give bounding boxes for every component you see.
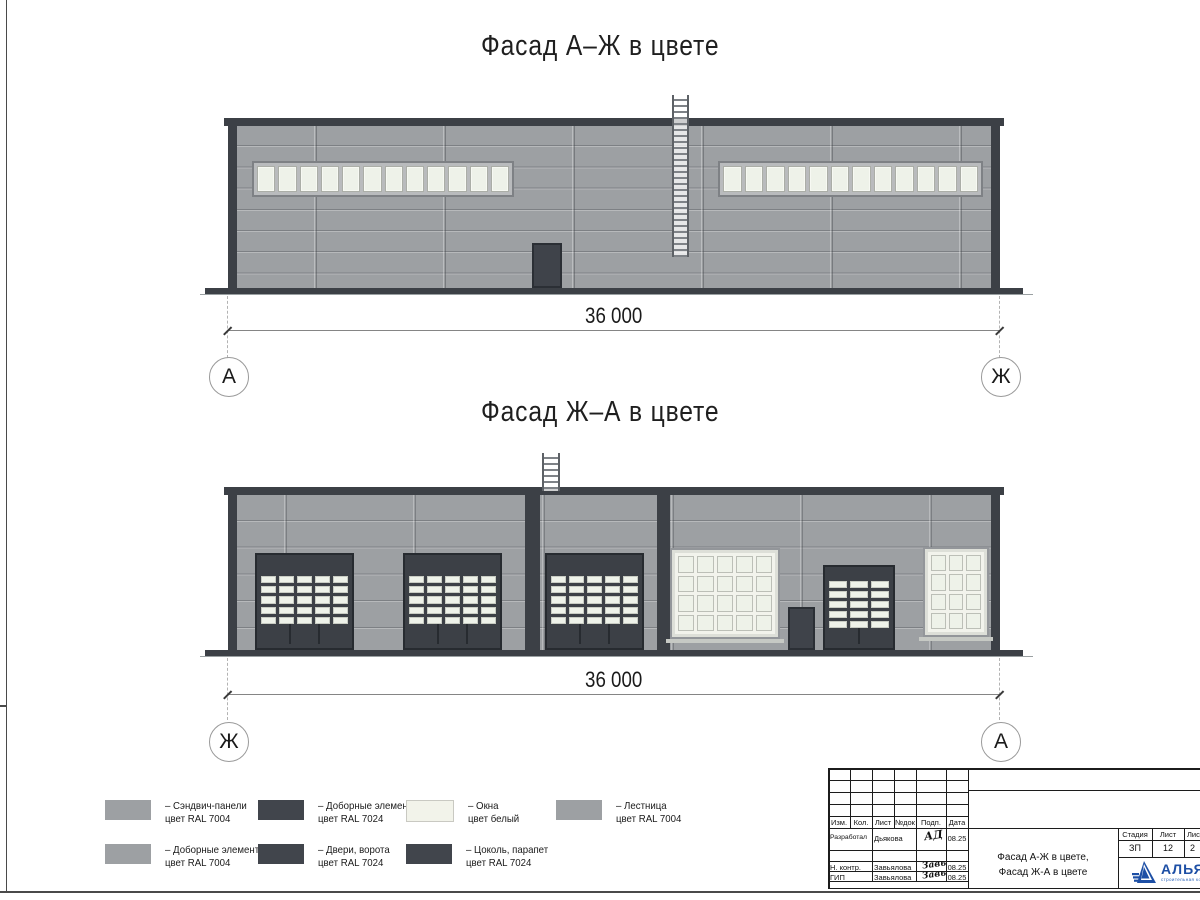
facade-2-corner-column-left <box>228 487 237 650</box>
glazing-pane <box>623 576 638 583</box>
glazing-pane <box>717 595 733 612</box>
glazing-pane <box>605 576 620 583</box>
glazing-pane <box>427 586 442 593</box>
logo-subtext: строительная комп <box>1161 877 1200 882</box>
tb-col-podp: Подп. <box>916 818 946 827</box>
legend-swatch <box>406 844 452 864</box>
tb-sheets-value: 2 <box>1190 843 1195 853</box>
tb-stage-label: Стадия <box>1118 830 1152 839</box>
glazing-pane <box>569 617 584 624</box>
tb-name: Завьялова <box>874 873 911 882</box>
glazing-pane <box>717 556 733 573</box>
glazing-pane <box>931 574 946 590</box>
gate-bottom <box>829 628 889 644</box>
tb-role: ГИП <box>830 873 845 882</box>
titleblock: Изм. Кол. Лист №док Подп. Дата Разработа… <box>828 768 1200 889</box>
glazing-pane <box>409 586 424 593</box>
facade-2-column-b <box>657 487 670 650</box>
legend-swatch <box>258 844 304 864</box>
glazing-pane <box>551 617 566 624</box>
glazing-pane <box>756 556 772 573</box>
glazing-pane <box>279 576 294 583</box>
glazing-pane <box>297 576 312 583</box>
facade-1-entrance-door <box>532 243 562 288</box>
gate-bottom-panel <box>829 628 858 644</box>
tb-signature: АД <box>923 828 943 843</box>
window-pane <box>470 166 488 192</box>
facade-2-sectional-gate-1 <box>255 553 354 650</box>
sheet-frame-bottom <box>0 891 1200 893</box>
glazing-pane <box>481 617 496 624</box>
gate-glazing <box>409 576 496 624</box>
glazing-pane <box>829 601 847 608</box>
window-sill <box>666 639 784 643</box>
glazing-pane <box>333 586 348 593</box>
glazing-pane <box>756 595 772 612</box>
glazing-pane <box>949 594 964 610</box>
glazing-pane <box>678 595 694 612</box>
window-glazing <box>931 555 981 629</box>
legend-label: – Лестницацвет RAL 7004 <box>616 800 681 825</box>
glazing-pane <box>850 601 868 608</box>
glazing-pane <box>445 607 460 614</box>
glazing-pane <box>966 574 981 590</box>
facade-2-small-gate <box>823 565 895 650</box>
glazing-pane <box>871 591 889 598</box>
gate-top-panel <box>409 559 496 576</box>
glazing-pane <box>587 607 602 614</box>
glazing-pane <box>623 607 638 614</box>
window-pane <box>809 166 828 192</box>
glazing-pane <box>481 576 496 583</box>
glazing-pane <box>427 576 442 583</box>
glazing-pane <box>463 586 478 593</box>
tb-role: Разработал <box>830 834 872 841</box>
legend-swatch <box>258 800 304 820</box>
window-pane <box>917 166 936 192</box>
glazing-pane <box>871 581 889 588</box>
glazing-pane <box>605 617 620 624</box>
glazing-pane <box>297 586 312 593</box>
glazing-pane <box>678 615 694 632</box>
axis-letter: А <box>222 365 236 389</box>
glazing-pane <box>623 617 638 624</box>
glazing-pane <box>409 576 424 583</box>
glazing-pane <box>261 576 276 583</box>
glazing-pane <box>481 596 496 603</box>
glazing-pane <box>551 596 566 603</box>
tb-col-data: Дата <box>946 818 968 827</box>
facade-2-dimension-line <box>228 694 1000 695</box>
facade-1-ground-line <box>200 294 1033 295</box>
facade-2-entrance-door <box>788 607 815 650</box>
window-pane <box>491 166 509 192</box>
glazing-pane <box>261 607 276 614</box>
glazing-pane <box>931 555 946 571</box>
tb-sheets-label: Лис <box>1187 830 1200 839</box>
window-pane <box>831 166 850 192</box>
gate-bottom-panel <box>608 624 638 644</box>
glazing-pane <box>333 617 348 624</box>
glazing-pane <box>261 596 276 603</box>
glazing-pane <box>315 617 330 624</box>
tb-sheet-label: Лист <box>1152 830 1184 839</box>
glazing-pane <box>481 607 496 614</box>
glazing-pane <box>445 586 460 593</box>
window-glazing <box>678 556 772 631</box>
glazing-pane <box>569 596 584 603</box>
facade-2-extension-line-right <box>999 658 1000 720</box>
window-pane <box>300 166 318 192</box>
window-pane <box>766 166 785 192</box>
glazing-pane <box>829 621 847 628</box>
glazing-pane <box>333 607 348 614</box>
tb-sheet-value: 12 <box>1152 843 1184 853</box>
glazing-pane <box>605 596 620 603</box>
glazing-pane <box>463 607 478 614</box>
glazing-pane <box>736 595 752 612</box>
facade-2-column-a <box>525 487 540 650</box>
facade-2-parapet <box>224 487 1004 495</box>
window-pane <box>745 166 764 192</box>
facade-2-dimension-label: 36 000 <box>514 667 714 693</box>
legend-label: – Доборные элементыцвет RAL 7004 <box>165 844 266 869</box>
legend-label: – Двери, воротацвет RAL 7024 <box>318 844 390 869</box>
tb-name: Дьякова <box>874 834 903 843</box>
glazing-pane <box>279 617 294 624</box>
window-sill <box>919 637 993 641</box>
glazing-pane <box>587 617 602 624</box>
legend-swatch <box>556 800 602 820</box>
glazing-pane <box>315 576 330 583</box>
glazing-pane <box>931 594 946 610</box>
gate-bottom-panel <box>318 624 348 644</box>
legend-swatch <box>105 800 151 820</box>
legend-item: – Лестницацвет RAL 7004 <box>556 800 687 825</box>
sheet-frame-left <box>6 0 7 891</box>
glazing-pane <box>463 576 478 583</box>
legend-swatch <box>105 844 151 864</box>
facade-1-drawing <box>228 118 1000 288</box>
legend-item: – Сэндвич-панелицвет RAL 7004 <box>105 800 254 825</box>
glazing-pane <box>551 586 566 593</box>
glazing-pane <box>931 613 946 629</box>
facade-1-ribbon-window-left <box>252 161 514 197</box>
window-pane <box>385 166 403 192</box>
glazing-pane <box>850 611 868 618</box>
glazing-pane <box>315 586 330 593</box>
glazing-pane <box>409 607 424 614</box>
glazing-pane <box>315 607 330 614</box>
facade-2-sectional-gate-3 <box>545 553 644 650</box>
tb-col-kol: Кол. <box>850 818 872 827</box>
window-pane <box>363 166 381 192</box>
facade-1-ribbon-window-right <box>718 161 983 197</box>
gate-glazing <box>261 576 348 624</box>
facade-1-parapet <box>224 118 1004 126</box>
facade-2-window-large-right <box>923 547 989 637</box>
facade-2-sectional-gate-2 <box>403 553 502 650</box>
window-pane <box>788 166 807 192</box>
sheet-frame-tick <box>0 705 6 707</box>
glazing-pane <box>445 617 460 624</box>
glazing-pane <box>966 555 981 571</box>
facade-2-corner-column-right <box>991 487 1000 650</box>
glazing-pane <box>409 617 424 624</box>
glazing-pane <box>623 596 638 603</box>
glazing-pane <box>315 596 330 603</box>
legend-label: – Цоколь, парапетцвет RAL 7024 <box>466 844 548 869</box>
legend-label: – Сэндвич-панелицвет RAL 7004 <box>165 800 247 825</box>
tb-date: 08.25 <box>946 873 968 882</box>
logo-text: АЛЬЯН <box>1161 861 1200 877</box>
glazing-pane <box>623 586 638 593</box>
window-pane <box>321 166 339 192</box>
gate-bottom-panel <box>551 624 579 644</box>
legend-label: – Окнацвет белый <box>468 800 519 825</box>
glazing-pane <box>279 596 294 603</box>
window-pane <box>427 166 445 192</box>
facade-1-dimension-line <box>228 330 1000 331</box>
glazing-pane <box>297 617 312 624</box>
facade-2-axis-circle-left: Ж <box>209 722 249 762</box>
glazing-pane <box>871 601 889 608</box>
glazing-pane <box>551 576 566 583</box>
glazing-pane <box>850 591 868 598</box>
window-pane <box>342 166 360 192</box>
glazing-pane <box>829 581 847 588</box>
facade-1-extension-line-left <box>227 296 228 358</box>
glazing-pane <box>551 607 566 614</box>
glazing-pane <box>427 607 442 614</box>
glazing-pane <box>949 613 964 629</box>
glazing-pane <box>279 586 294 593</box>
glazing-pane <box>736 576 752 593</box>
glazing-pane <box>587 596 602 603</box>
glazing-pane <box>481 586 496 593</box>
window-pane <box>257 166 275 192</box>
facade-1-title: Фасад А–Ж в цвете <box>0 30 1200 63</box>
glazing-pane <box>966 594 981 610</box>
facade-2-extension-line-left <box>227 658 228 720</box>
legend-item: – Окнацвет белый <box>406 800 524 825</box>
tb-doc-title-line2: Фасад Ж-А в цвете <box>968 867 1118 878</box>
glazing-pane <box>871 611 889 618</box>
glazing-pane <box>409 596 424 603</box>
legend-item: – Доборные элементыцвет RAL 7024 <box>258 800 428 825</box>
glazing-pane <box>333 576 348 583</box>
gate-bottom-panel <box>858 628 889 644</box>
glazing-pane <box>949 574 964 590</box>
glazing-pane <box>756 576 772 593</box>
facade-1-axis-circle-left: А <box>209 357 249 397</box>
facade-2-roof-ladder <box>542 453 560 491</box>
logo-triangle-icon <box>1132 861 1156 885</box>
facade-2-window-large-left <box>670 548 780 639</box>
facade-2-ground-line <box>200 656 1033 657</box>
glazing-pane <box>678 576 694 593</box>
facade-2-drawing <box>228 487 1000 650</box>
facade-1-axis-circle-right: Ж <box>981 357 1021 397</box>
gate-bottom-panel <box>409 624 437 644</box>
drawing-sheet: Фасад А–Ж в цвете 36 000 А Ж Фасад Ж–А в… <box>0 0 1200 900</box>
axis-letter: Ж <box>991 365 1010 389</box>
glazing-pane <box>463 617 478 624</box>
glazing-pane <box>569 607 584 614</box>
glazing-pane <box>756 615 772 632</box>
facade-1-corner-column-left <box>228 118 237 288</box>
legend-item: – Цоколь, парапетцвет RAL 7024 <box>406 844 555 869</box>
glazing-pane <box>717 615 733 632</box>
glazing-pane <box>829 591 847 598</box>
facade-1-roof-ladder <box>672 95 689 257</box>
window-pane <box>938 166 957 192</box>
glazing-pane <box>829 611 847 618</box>
tb-signature: Завь <box>921 868 946 881</box>
gate-bottom <box>261 624 348 644</box>
facade-2-axis-circle-right: А <box>981 722 1021 762</box>
glazing-pane <box>605 586 620 593</box>
glazing-pane <box>587 576 602 583</box>
gate-bottom-panel <box>437 624 467 644</box>
window-pane <box>852 166 871 192</box>
window-pane <box>406 166 424 192</box>
glazing-pane <box>605 607 620 614</box>
glazing-pane <box>445 596 460 603</box>
window-pane <box>895 166 914 192</box>
facade-2-title: Фасад Ж–А в цвете <box>0 396 1200 429</box>
facade-1-extension-line-right <box>999 296 1000 358</box>
glazing-pane <box>717 576 733 593</box>
gate-bottom-panel <box>466 624 496 644</box>
glazing-pane <box>261 586 276 593</box>
tb-date: 08.25 <box>946 863 968 872</box>
glazing-pane <box>463 596 478 603</box>
axis-letter: Ж <box>219 730 238 754</box>
glazing-pane <box>966 613 981 629</box>
gate-bottom <box>409 624 496 644</box>
glazing-pane <box>261 617 276 624</box>
legend-item: – Доборные элементыцвет RAL 7004 <box>105 844 275 869</box>
glazing-pane <box>569 586 584 593</box>
glazing-pane <box>871 621 889 628</box>
glazing-pane <box>697 576 713 593</box>
window-pane <box>874 166 893 192</box>
window-pane <box>448 166 466 192</box>
gate-glazing <box>829 581 889 628</box>
gate-top-panel <box>261 559 348 576</box>
glazing-pane <box>569 576 584 583</box>
tb-doc-title-line1: Фасад А-Ж в цвете, <box>968 852 1118 863</box>
glazing-pane <box>427 617 442 624</box>
glazing-pane <box>427 596 442 603</box>
gate-bottom <box>551 624 638 644</box>
glazing-pane <box>697 556 713 573</box>
glazing-pane <box>333 596 348 603</box>
gate-bottom-panel <box>261 624 289 644</box>
glazing-pane <box>949 555 964 571</box>
glazing-pane <box>850 621 868 628</box>
glazing-pane <box>279 607 294 614</box>
glazing-pane <box>697 615 713 632</box>
gate-glazing <box>551 576 638 624</box>
tb-date: 08.25 <box>946 834 968 843</box>
glazing-pane <box>445 576 460 583</box>
glazing-pane <box>736 556 752 573</box>
tb-stage-value: ЗП <box>1118 843 1152 853</box>
tb-col-list: Лист <box>872 818 894 827</box>
legend-label: – Доборные элементыцвет RAL 7024 <box>318 800 419 825</box>
glazing-pane <box>736 615 752 632</box>
gate-bottom-panel <box>289 624 319 644</box>
glazing-pane <box>697 595 713 612</box>
glazing-pane <box>850 581 868 588</box>
glazing-pane <box>297 607 312 614</box>
gate-bottom-panel <box>579 624 609 644</box>
window-pane <box>723 166 742 192</box>
legend-swatch <box>406 800 454 822</box>
tb-role: Н. контр. <box>830 863 861 872</box>
tb-col-ndok: №док <box>894 818 916 827</box>
facade-1-corner-column-right <box>991 118 1000 288</box>
glazing-pane <box>678 556 694 573</box>
axis-letter: А <box>994 730 1008 754</box>
company-logo: АЛЬЯН строительная комп <box>1132 861 1200 885</box>
tb-name: Завьялова <box>874 863 911 872</box>
window-pane <box>278 166 296 192</box>
gate-top-panel <box>551 559 638 576</box>
glazing-pane <box>587 586 602 593</box>
facade-1-dimension-label: 36 000 <box>514 303 714 329</box>
legend-item: – Двери, воротацвет RAL 7024 <box>258 844 396 869</box>
gate-top-panel <box>829 571 889 581</box>
glazing-pane <box>297 596 312 603</box>
tb-col-izm: Изм. <box>828 818 850 827</box>
window-pane <box>960 166 979 192</box>
facade-1-wall-panels <box>228 126 1000 288</box>
